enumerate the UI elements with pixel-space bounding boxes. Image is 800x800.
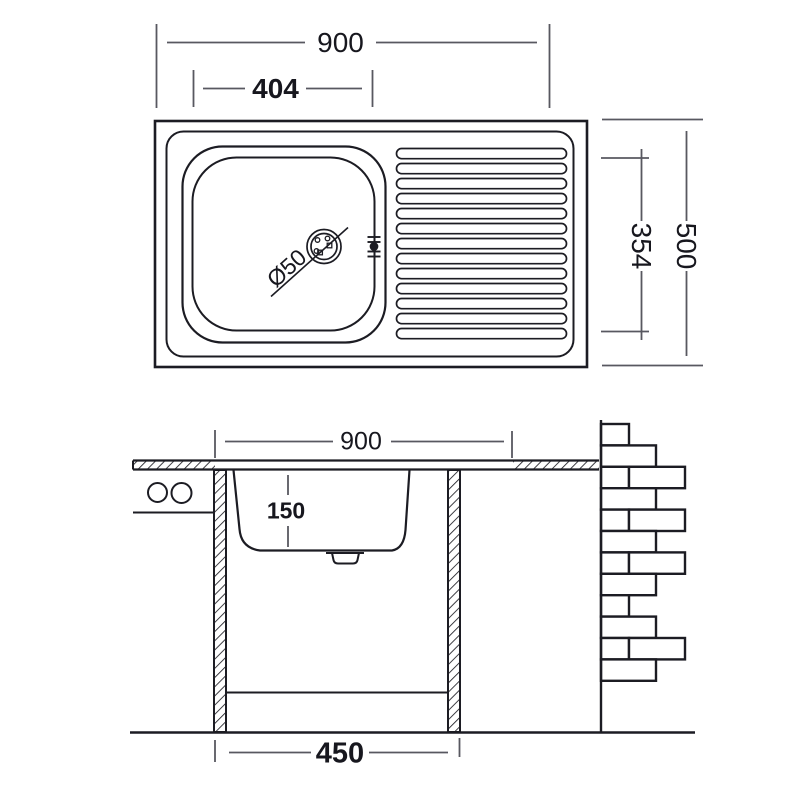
brick-wall [601,424,685,681]
top-bowl-depth-label: 354 [626,223,657,270]
sink-technical-drawing: Ø50 900 404 [0,0,800,800]
appliance-knobs-icon [133,483,214,513]
countertop-hatch-left [133,461,215,469]
sink-inner-rim [167,132,574,357]
countertop-hatch-right [513,461,599,469]
drawing-svg: Ø50 900 404 [0,0,800,800]
bowl-inner-outline [193,158,375,331]
section-bowl-depth-label: 150 [267,498,305,524]
drain-diameter-label: Ø50 [262,244,312,292]
bowl-section-outline [234,470,410,551]
section-view: 900 150 450 [130,420,695,770]
top-view: Ø50 900 404 [155,24,703,367]
section-base-width-label: 450 [316,738,364,770]
drainboard-ridges [397,149,567,339]
bowl-outer-outline [183,147,386,343]
top-overall-width-label: 900 [317,27,364,58]
cabinet-panel-right [448,470,460,732]
drain-icon [307,230,341,264]
top-overall-depth-label: 500 [671,223,702,270]
top-bowl-width-label: 404 [252,73,299,104]
section-overall-width-label: 900 [340,428,382,456]
countertop [133,461,599,470]
cabinet-panel-left [214,470,226,732]
drain-fitting-section [326,553,364,564]
